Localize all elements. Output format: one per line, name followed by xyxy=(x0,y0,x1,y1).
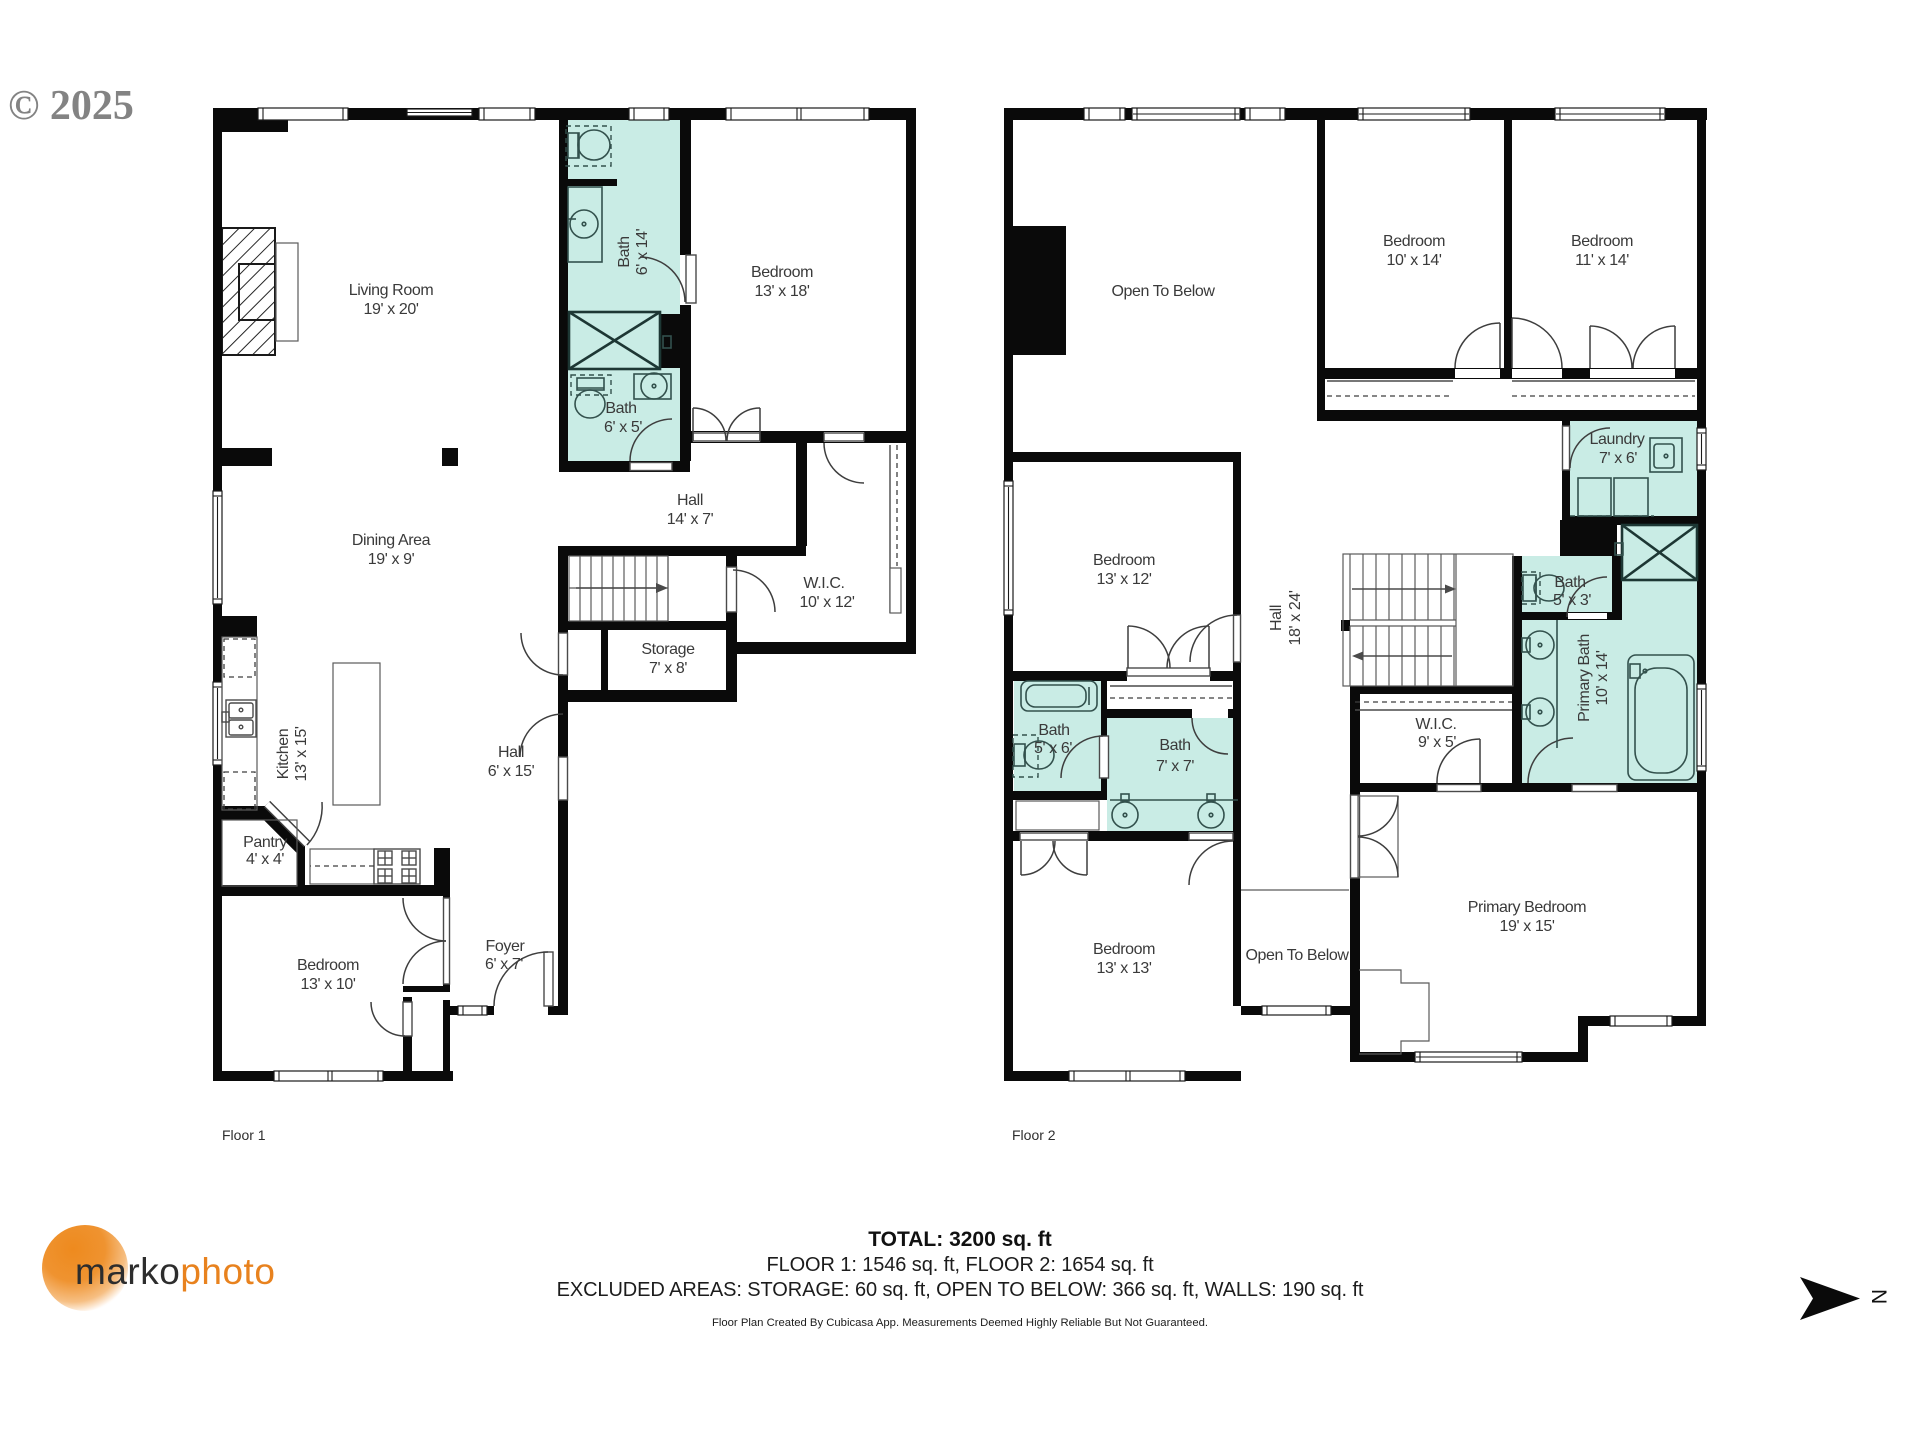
svg-text:14' x 7': 14' x 7' xyxy=(667,511,714,528)
svg-text:Living Room: Living Room xyxy=(349,282,434,299)
svg-text:W.I.C.: W.I.C. xyxy=(803,575,844,592)
svg-text:11' x 14': 11' x 14' xyxy=(1575,252,1629,269)
svg-text:19' x 15': 19' x 15' xyxy=(1500,918,1555,935)
svg-text:© 2025: © 2025 xyxy=(8,83,134,129)
svg-text:Bedroom: Bedroom xyxy=(1383,233,1445,250)
svg-text:6' x 15': 6' x 15' xyxy=(488,763,535,780)
svg-text:7' x 6': 7' x 6' xyxy=(1599,450,1637,467)
svg-text:EXCLUDED AREAS: STORAGE: 60 sq: EXCLUDED AREAS: STORAGE: 60 sq. ft, OPEN… xyxy=(557,1279,1364,1301)
svg-text:Bedroom: Bedroom xyxy=(1093,552,1155,569)
svg-text:Bedroom: Bedroom xyxy=(1571,233,1633,250)
svg-text:13' x 18': 13' x 18' xyxy=(755,283,810,300)
svg-text:Open To Below: Open To Below xyxy=(1111,283,1215,300)
svg-text:13' x 15': 13' x 15' xyxy=(293,726,310,781)
svg-text:Dining Area: Dining Area xyxy=(352,532,431,549)
svg-text:7' x 7': 7' x 7' xyxy=(1156,758,1194,775)
svg-text:6' x 5': 6' x 5' xyxy=(604,419,642,436)
svg-text:Foyer: Foyer xyxy=(486,938,526,955)
svg-text:Bath: Bath xyxy=(616,236,633,267)
svg-text:FLOOR 1: 1546 sq. ft, FLOOR 2:: FLOOR 1: 1546 sq. ft, FLOOR 2: 1654 sq. … xyxy=(766,1254,1154,1276)
svg-text:18' x 24': 18' x 24' xyxy=(1287,590,1304,645)
svg-text:6' x 7': 6' x 7' xyxy=(485,956,523,973)
svg-text:W.I.C.: W.I.C. xyxy=(1415,716,1456,733)
svg-text:Bedroom: Bedroom xyxy=(751,264,813,281)
svg-text:9' x 5': 9' x 5' xyxy=(1418,734,1456,751)
svg-text:13' x 12': 13' x 12' xyxy=(1097,571,1152,588)
svg-text:TOTAL: 3200 sq. ft: TOTAL: 3200 sq. ft xyxy=(868,1228,1052,1251)
svg-text:Hall: Hall xyxy=(498,744,524,761)
svg-text:13' x 13': 13' x 13' xyxy=(1097,960,1152,977)
svg-text:Hall: Hall xyxy=(1268,605,1285,631)
svg-text:N: N xyxy=(1867,1289,1890,1304)
svg-text:19' x 9': 19' x 9' xyxy=(368,551,415,568)
svg-text:Storage: Storage xyxy=(641,641,695,658)
svg-text:10' x 12': 10' x 12' xyxy=(800,594,855,611)
svg-text:Bath: Bath xyxy=(605,400,636,417)
svg-text:Primary Bedroom: Primary Bedroom xyxy=(1468,899,1587,916)
svg-text:5' x 3': 5' x 3' xyxy=(1553,592,1591,609)
svg-text:5' x 6': 5' x 6' xyxy=(1034,740,1072,757)
svg-text:Floor Plan Created By Cubicasa: Floor Plan Created By Cubicasa App. Meas… xyxy=(712,1317,1208,1329)
svg-text:Bedroom: Bedroom xyxy=(297,957,359,974)
svg-text:Kitchen: Kitchen xyxy=(275,729,292,780)
svg-text:19' x 20': 19' x 20' xyxy=(364,301,419,318)
svg-text:Bedroom: Bedroom xyxy=(1093,941,1155,958)
svg-text:Hall: Hall xyxy=(677,492,703,509)
svg-text:6' x 14': 6' x 14' xyxy=(634,228,651,275)
svg-text:Floor 1: Floor 1 xyxy=(222,1127,266,1143)
svg-text:10' x 14': 10' x 14' xyxy=(1387,252,1442,269)
svg-text:Laundry: Laundry xyxy=(1589,431,1644,448)
svg-text:Bath: Bath xyxy=(1554,574,1585,591)
svg-text:Floor 2: Floor 2 xyxy=(1012,1127,1056,1143)
svg-text:Bath: Bath xyxy=(1038,722,1069,739)
svg-text:Pantry: Pantry xyxy=(243,834,287,851)
svg-text:Bath: Bath xyxy=(1159,737,1190,754)
svg-text:7' x 8': 7' x 8' xyxy=(649,660,687,677)
svg-text:markophoto: markophoto xyxy=(75,1251,275,1292)
svg-text:Open To Below: Open To Below xyxy=(1245,947,1349,964)
svg-text:13' x 10': 13' x 10' xyxy=(301,976,356,993)
svg-text:10' x 14': 10' x 14' xyxy=(1594,650,1611,705)
svg-text:4' x 4': 4' x 4' xyxy=(246,851,284,868)
svg-text:Primary Bath: Primary Bath xyxy=(1576,634,1593,722)
